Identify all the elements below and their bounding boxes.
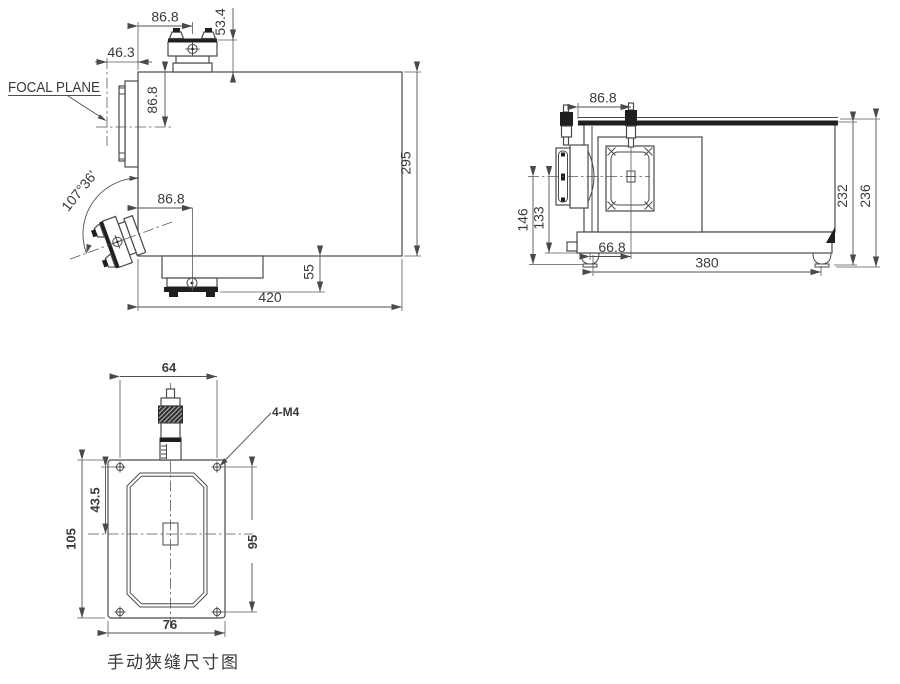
dim-text: 86.8 [157, 191, 184, 207]
monochromator-body-side [138, 72, 402, 256]
dim-text: 46.3 [107, 44, 134, 60]
dim-text: 55 [301, 264, 317, 280]
slit-plate-front [606, 146, 654, 211]
micrometer-side [560, 105, 573, 145]
side-view: 86.8 53.4 46.3 FOCAL PLANE 86.8 [8, 8, 421, 311]
dim-text: 86.8 [151, 9, 178, 25]
dim-focal-offset: 46.3 [95, 44, 152, 62]
dim-text: 420 [258, 289, 282, 305]
dim-body-height-front: 232 [834, 122, 857, 265]
dim-text: 107°36' [58, 167, 100, 214]
dim-slit-offset-front: 86.8 [578, 90, 631, 120]
connector-knob [567, 242, 577, 251]
dim-mount-span: 380 [593, 255, 821, 277]
dim-text: 105 [64, 528, 79, 550]
drawing-caption: 手动狭缝尺寸图 [107, 653, 240, 672]
dim-text: 232 [834, 184, 850, 208]
dim-text: 236 [857, 184, 873, 208]
thread-label: 4-M4 [272, 405, 300, 419]
engineering-drawing-manual-slit: 86.8 53.4 46.3 FOCAL PLANE 86.8 [0, 0, 900, 684]
entrance-slit-side [556, 105, 594, 208]
dim-text: 43.5 [88, 487, 103, 512]
top-slit-assembly [168, 28, 217, 72]
dim-text: 380 [695, 255, 719, 271]
dim-text: 53.4 [212, 8, 228, 35]
dim-text: 146 [515, 208, 531, 232]
foot-right [813, 253, 831, 267]
base-assembly [162, 256, 263, 297]
focal-plane-flange [119, 81, 138, 167]
dim-text: 76 [163, 617, 177, 632]
dim-plate-width: 76 [108, 617, 225, 637]
knurled-knob [159, 406, 183, 423]
thread-callout: 4-M4 [220, 405, 300, 466]
front-view: 86.8 146 133 66.8 380 232 [515, 90, 881, 277]
dim-text: 86.8 [589, 90, 616, 106]
slit-face-view: 64 4-M4 43.5 105 95 76 [64, 360, 300, 637]
dim-text: 95 [245, 535, 260, 549]
table-top-bar [578, 121, 838, 126]
drawing-svg: 86.8 53.4 46.3 FOCAL PLANE 86.8 [0, 0, 900, 684]
dim-plate-height: 105 [64, 460, 106, 618]
dim-text: 64 [162, 360, 177, 375]
dim-text: 133 [531, 206, 547, 230]
dim-text: 86.8 [144, 86, 160, 113]
focal-plane-label: FOCAL PLANE [8, 79, 100, 96]
dim-hole-span-v: 95 [222, 467, 260, 612]
micrometer-head [159, 389, 183, 460]
focal-plane-callout: FOCAL PLANE [8, 79, 107, 121]
dim-text: 295 [398, 151, 414, 175]
dim-text: 66.8 [598, 239, 625, 255]
